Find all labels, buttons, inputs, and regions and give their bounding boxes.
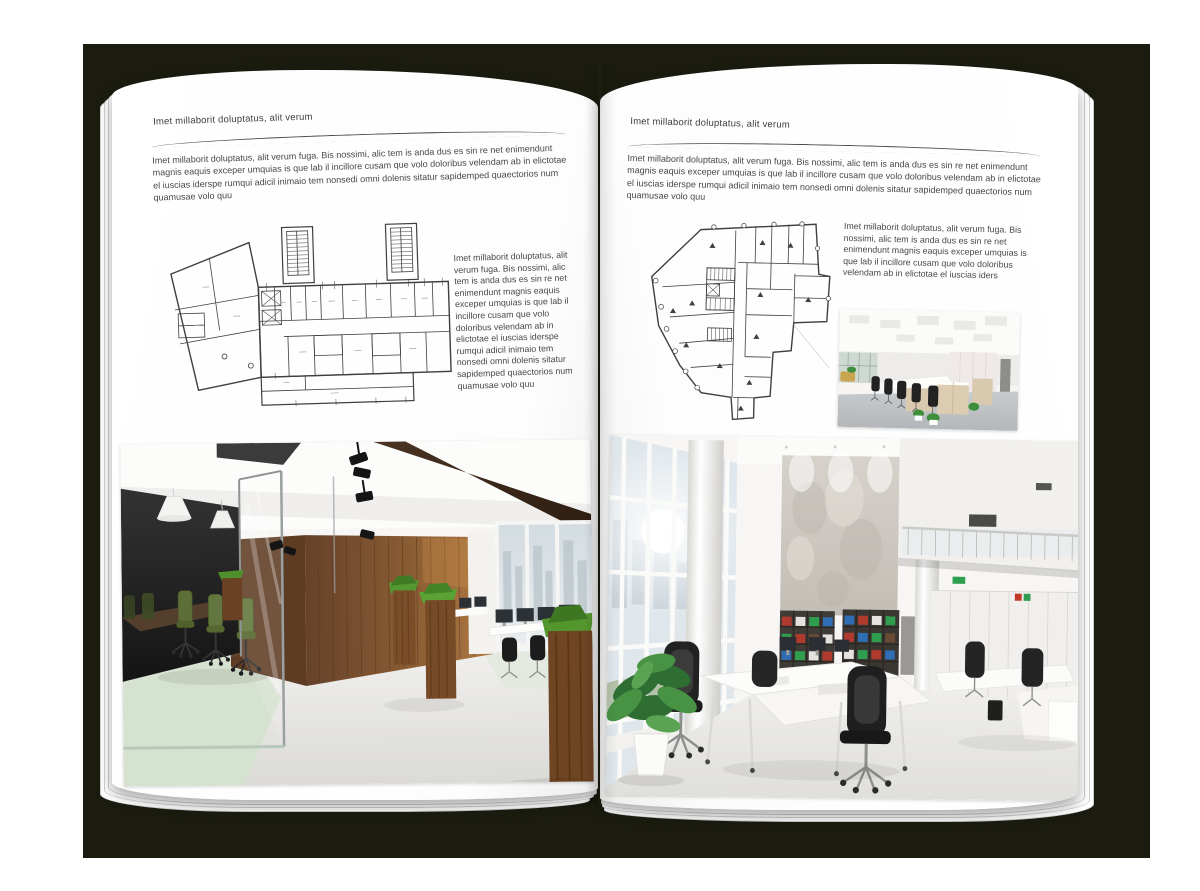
- office-photo-small: [837, 309, 1020, 431]
- left-side-text: Imet millaborit doluptatus, alit verum f…: [453, 249, 581, 392]
- right-side-text: Imet millaborit doluptatus, alit verum f…: [843, 221, 1030, 283]
- office-photo-right: [606, 435, 1078, 802]
- exit-sign: [953, 577, 966, 584]
- first-aid-sign: [1024, 594, 1031, 601]
- first-aid-sign: [1015, 594, 1022, 601]
- left-page: Imet millaborit doluptatus, alit verum I…: [112, 70, 598, 800]
- right-page-header: Imet millaborit doluptatus, alit verum: [630, 116, 790, 131]
- brochure-mockup-scene: Imet millaborit doluptatus, alit verum I…: [0, 0, 1200, 891]
- right-intro-paragraph: Imet millaborit doluptatus, alit verum f…: [626, 152, 1047, 211]
- floor-plan-left: [160, 219, 458, 418]
- left-page-header: Imet millaborit doluptatus, alit verum: [153, 112, 313, 128]
- left-intro-paragraph: Imet millaborit doluptatus, alit verum f…: [152, 142, 569, 205]
- mezzanine: [898, 439, 1078, 579]
- office-photo-left: [120, 440, 594, 787]
- floor-plan-right: [639, 214, 838, 428]
- right-page: Imet millaborit doluptatus, alit verum I…: [600, 64, 1078, 810]
